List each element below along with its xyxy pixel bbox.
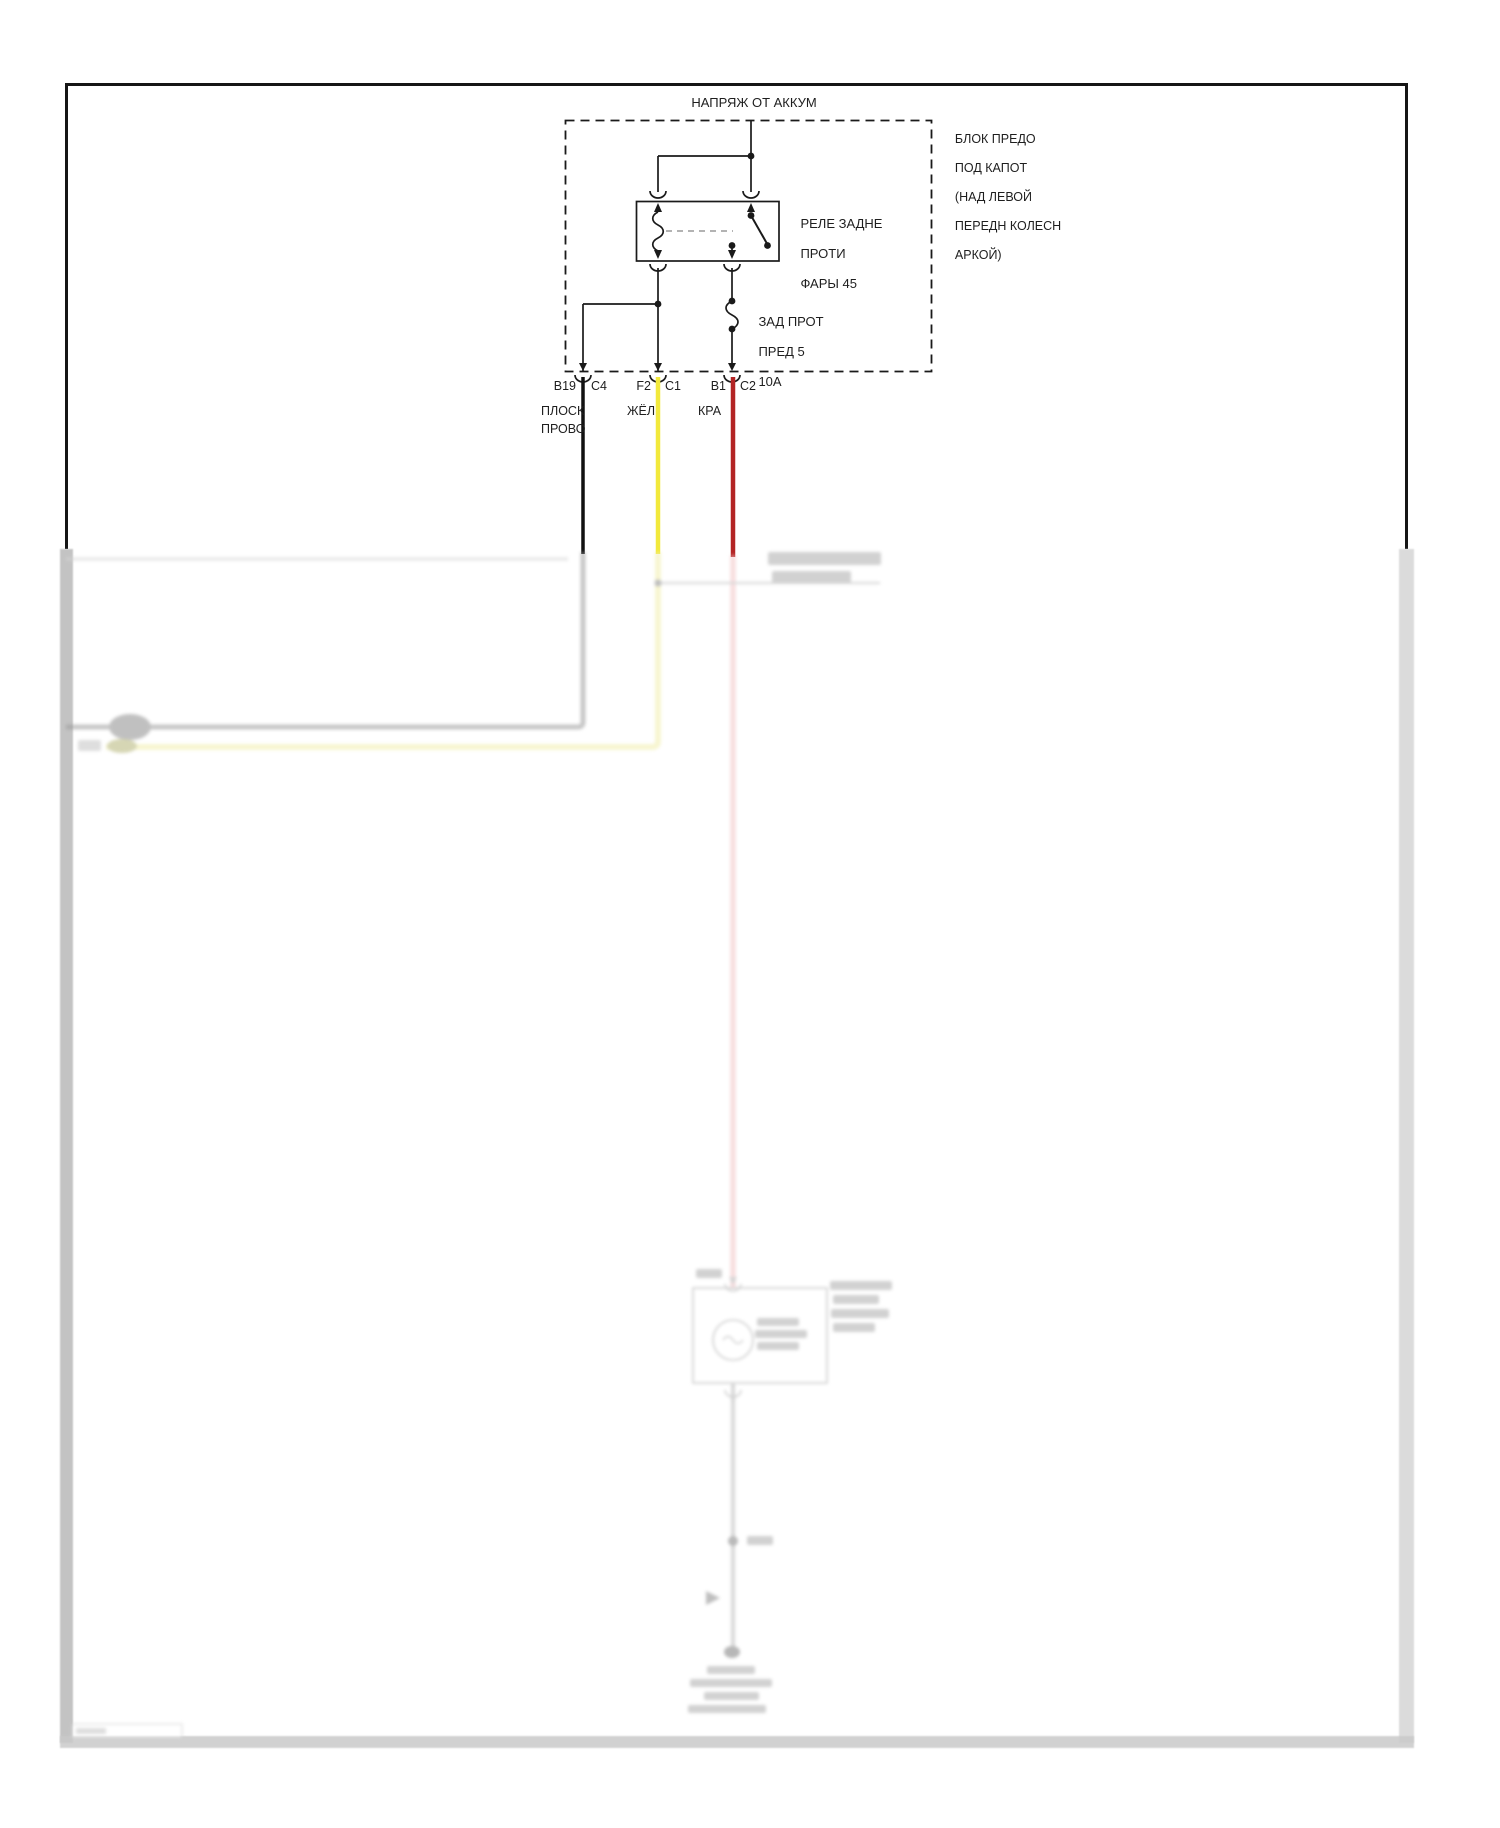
connector-label-c4: C4 — [591, 379, 607, 394]
arrow-down-faded — [729, 1277, 737, 1285]
connector-marker-faded — [706, 1591, 720, 1605]
blurred-label — [833, 1295, 879, 1304]
wire-label-yellow: ЖЁЛ — [627, 404, 655, 419]
blurred-label — [833, 1323, 875, 1332]
connector-label-c1: C1 — [665, 379, 681, 394]
blurred-label — [755, 1330, 807, 1338]
fuse-block-label-line: АРКОЙ) — [955, 248, 1002, 262]
blurred-label — [76, 1728, 106, 1734]
blurred-label — [757, 1318, 799, 1326]
connector-label-c2: C2 — [740, 379, 756, 394]
ground-symbol — [724, 1646, 740, 1658]
blurred-label — [831, 1309, 889, 1318]
fuse-label-line: ПРЕД 5 — [758, 344, 804, 359]
fuse-block-label-line: (НАД ЛЕВОЙ — [955, 190, 1032, 204]
wire-label-black-2: ПРОВО — [541, 422, 585, 437]
wire-label-red: КРА — [698, 404, 721, 419]
callout-dot — [655, 580, 662, 587]
wire-label-black-1: ПЛОСК — [541, 404, 584, 419]
faded-diagram-zone — [0, 0, 1500, 1828]
inline-connector-blob-yellow — [107, 739, 137, 753]
fuse-block-label-line: БЛОК ПРЕДО — [955, 132, 1036, 146]
wire-yellow-faded — [106, 552, 658, 747]
blurred-label — [688, 1705, 766, 1713]
blurred-label — [830, 1281, 892, 1290]
splice-dot-faded — [728, 1536, 738, 1546]
fuse-label-line: ЗАД ПРОТ — [758, 314, 823, 329]
wiring-diagram-page: НАПРЯЖ ОТ АККУМ БЛОК ПРЕДО ПОД КАПОТ (НА… — [0, 0, 1500, 1828]
fuse-block-location-label: БЛОК ПРЕДО ПОД КАПОТ (НАД ЛЕВОЙ ПЕРЕДН К… — [941, 117, 1061, 277]
battery-voltage-label: НАПРЯЖ ОТ АККУМ — [684, 95, 824, 110]
blurred-label — [707, 1666, 755, 1674]
inline-connector-blob — [109, 714, 151, 740]
blurred-label — [704, 1692, 759, 1700]
blurred-label — [78, 740, 101, 751]
fuse-block-label-line: ПЕРЕДН КОЛЕСН — [955, 219, 1061, 233]
wiring-svg-faded — [0, 0, 1500, 1828]
fuse-label-line: 10А — [758, 374, 781, 389]
blurred-label — [772, 571, 851, 583]
pin-label-f2: F2 — [615, 379, 651, 394]
blurred-label — [757, 1342, 799, 1350]
relay-label-line: РЕЛЕ ЗАДНЕ — [800, 216, 882, 231]
blurred-label — [690, 1679, 772, 1687]
wire-black-faded — [66, 552, 583, 727]
fuse-block-label-line: ПОД КАПОТ — [955, 161, 1027, 175]
pin-label-b19: B19 — [540, 379, 576, 394]
blurred-label — [768, 552, 881, 565]
relay-label-line: ПРОТИ — [800, 246, 845, 261]
relay-label: РЕЛЕ ЗАДНЕ ПРОТИ ФАРЫ 45 — [786, 201, 882, 306]
blurred-label — [696, 1269, 722, 1278]
arrow-down-faded — [729, 1395, 737, 1403]
pin-label-b1: B1 — [690, 379, 726, 394]
lamp-filament — [723, 1337, 743, 1344]
blurred-label — [747, 1536, 773, 1545]
relay-label-line: ФАРЫ 45 — [800, 276, 857, 291]
